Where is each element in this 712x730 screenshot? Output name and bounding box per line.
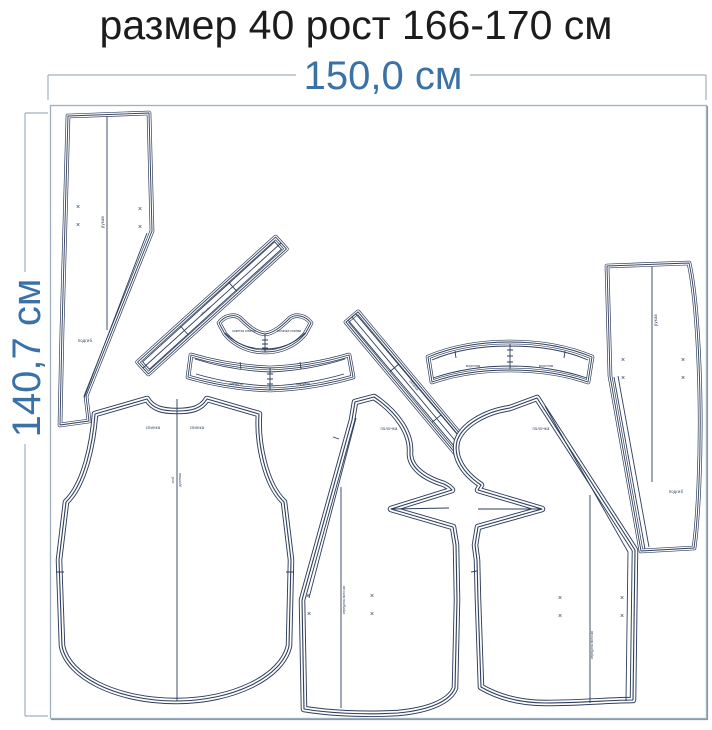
sleeve-left-grain-label: рукав (100, 216, 105, 228)
back-grain-label: долевая (178, 473, 182, 486)
yoke-label-right: обтачка спинки (277, 329, 301, 333)
x-mark: × (370, 593, 374, 600)
sleeve-piece-right: × × × × рукав подгиб (607, 263, 700, 551)
height-dimension: 140,7 см (5, 113, 49, 716)
front-piece-right: × × × × полочка середина полочки (456, 398, 635, 703)
width-dimension: 150,0 см (48, 54, 706, 100)
x-mark: × (558, 613, 562, 620)
width-dimension-label: 150,0 см (304, 54, 463, 98)
sleeve-piece-left: × × × × рукав подгиб (60, 113, 152, 425)
front-right-label: полочка (532, 426, 550, 431)
x-mark: × (76, 204, 80, 211)
collar-band-label-right: воротник (539, 364, 554, 368)
neck-band-label-right: манжета (296, 382, 310, 386)
sleeve-right-grain-label: рукав (653, 314, 658, 326)
front-left-grain-label: середина полочки (342, 586, 346, 615)
back-label-right: спинка (190, 425, 205, 430)
back-fold-label: сгиб (171, 477, 175, 484)
x-mark: × (621, 375, 625, 382)
x-mark: × (681, 357, 685, 364)
x-mark: × (370, 611, 374, 618)
pattern-drawing: 150,0 см 140,7 см × × × × рукав подгиб ×… (0, 0, 712, 730)
front-piece-left: × × × × полочка середина полочки (302, 397, 457, 714)
x-mark: × (138, 206, 142, 213)
height-dimension-label: 140,7 см (5, 279, 49, 438)
x-mark: × (76, 222, 80, 229)
x-mark: × (681, 375, 685, 382)
sleeve-right-hem-label: подгиб (669, 489, 684, 494)
front-right-grain-label: середина полочки (590, 631, 594, 660)
back-yoke-piece: кокетка спинки обтачка спинки (219, 316, 311, 352)
x-mark: × (138, 224, 142, 231)
x-mark: × (621, 357, 625, 364)
sleeve-left-hem-label: подгиб (78, 338, 93, 343)
x-mark: × (620, 595, 624, 602)
yoke-label-left: кокетка спинки (232, 329, 255, 333)
x-mark: × (620, 613, 624, 620)
x-mark: × (558, 595, 562, 602)
x-mark: × (306, 593, 310, 600)
back-label-left: спинка (146, 425, 161, 430)
collar-band-piece: воротник воротник (428, 342, 592, 382)
pattern-sheet: размер 40 рост 166-170 см 150,0 см 140,7… (0, 0, 712, 730)
back-piece: спинка спинка сгиб долевая (56, 399, 294, 701)
neck-band-piece: манжета манжета (188, 355, 353, 390)
front-left-label: полочка (380, 426, 398, 431)
x-mark: × (307, 611, 311, 618)
neck-band-label-left: манжета (229, 382, 243, 386)
collar-band-label-left: воротник (466, 364, 481, 368)
